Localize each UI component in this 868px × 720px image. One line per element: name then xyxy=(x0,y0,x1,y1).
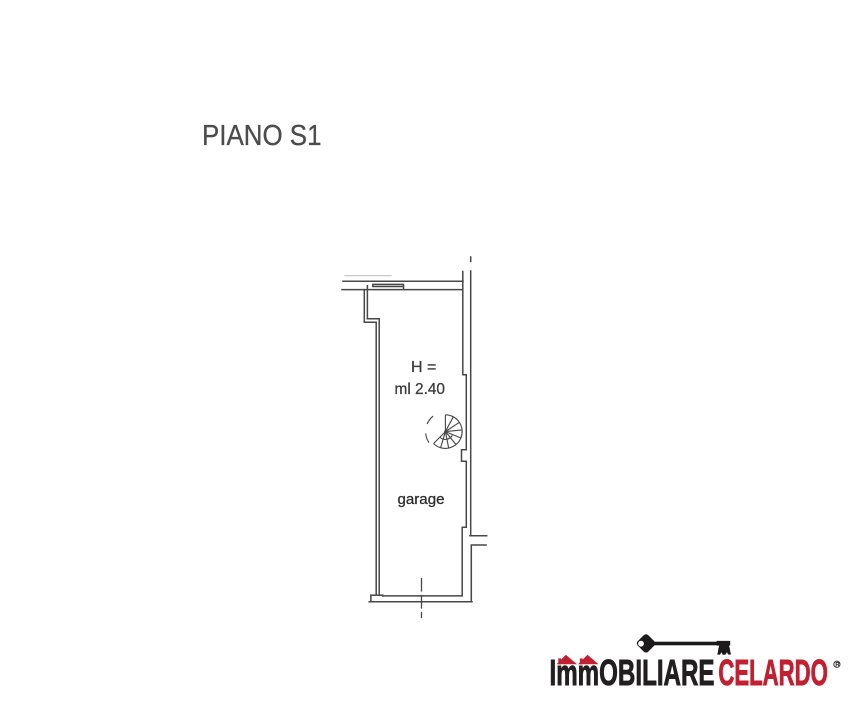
svg-text:ml 2.40: ml 2.40 xyxy=(395,381,446,398)
svg-text:H =: H = xyxy=(411,359,436,376)
svg-text:R: R xyxy=(835,661,840,668)
svg-text:PIANO S1: PIANO S1 xyxy=(202,120,322,152)
svg-text:ImmOBILIARE: ImmOBILIARE xyxy=(550,652,715,693)
svg-text:CELARDO: CELARDO xyxy=(718,652,828,693)
svg-text:garage: garage xyxy=(398,491,445,508)
